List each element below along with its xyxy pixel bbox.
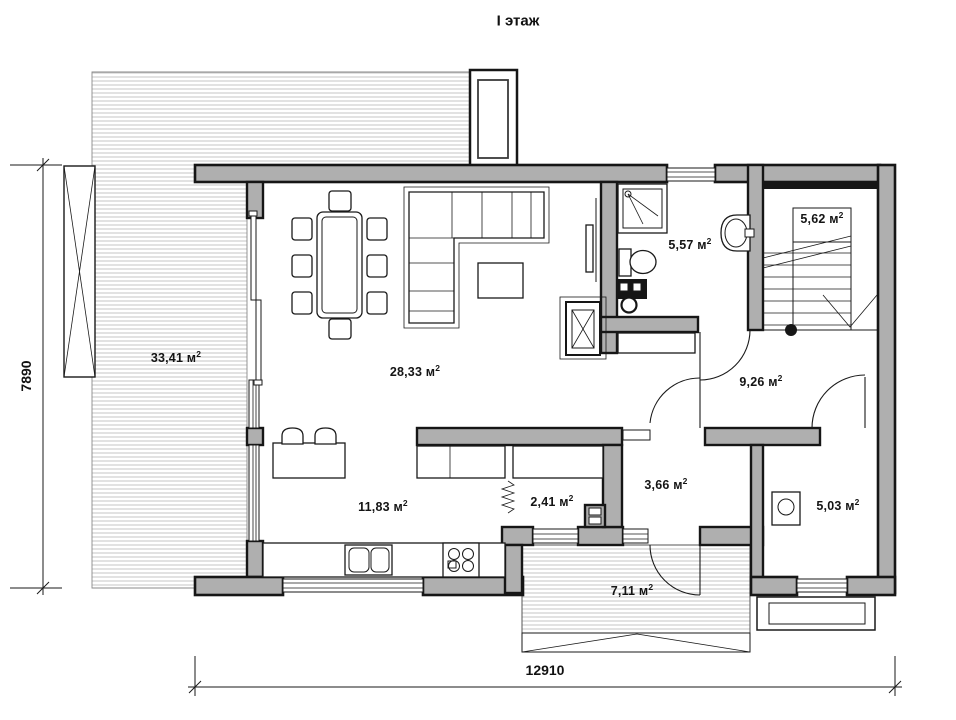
threshold [623, 430, 650, 440]
window-kitchen-south [283, 579, 423, 592]
window-boiler-south [797, 579, 847, 592]
dining-set [292, 191, 387, 339]
corner-sofa [404, 187, 549, 328]
sliding-door-terrace [249, 211, 262, 385]
room-label-bathroom: 5,57 м2 [668, 236, 711, 252]
bar-counter [273, 428, 345, 478]
stairs [763, 208, 877, 336]
window-entry-side [623, 529, 648, 543]
wall-south-kitchen-1 [195, 577, 283, 595]
stove [443, 543, 479, 577]
room-area-value: 3,66 [644, 478, 669, 492]
bar-stool [315, 428, 336, 444]
room-area-value: 5,57 [668, 238, 693, 252]
room-label-living: 28,33 м2 [390, 363, 440, 379]
window-closet-south [533, 529, 578, 543]
room-area-value: 7,11 [611, 584, 635, 598]
wall-stair-inner-border [763, 182, 878, 189]
window-north [667, 168, 715, 181]
hall-console [618, 333, 695, 353]
door-accordion-closet [502, 481, 514, 513]
room-label-porch: 7,11 м2 [611, 582, 654, 598]
room-area-value: 11,83 [358, 500, 390, 514]
shelf-niche [585, 505, 605, 527]
dimension-width-label: 12910 [526, 662, 565, 678]
wall-south-east-1 [751, 577, 797, 595]
room-label-closet: 2,41 м2 [530, 493, 573, 509]
furniture [263, 184, 800, 577]
wall-north-west [195, 165, 667, 182]
room-label-boiler-room: 5,03 м2 [816, 497, 859, 513]
door-entry-hall [650, 378, 700, 423]
wall-bath-south [601, 317, 698, 332]
window-west-1 [249, 380, 259, 428]
coffee-table [478, 263, 523, 298]
dimension-height-label: 7890 [18, 360, 34, 391]
washbasin [721, 215, 754, 251]
wall-boiler-west [751, 445, 763, 593]
stair-newel-post [785, 324, 797, 336]
room-label-hall: 9,26 м2 [739, 373, 782, 389]
plumbing-riser [617, 279, 647, 313]
wall-closet-north [417, 428, 622, 445]
awning [64, 166, 95, 377]
boiler [772, 492, 800, 525]
room-area-value: 5,03 [816, 499, 841, 513]
kitchen-counter [263, 543, 505, 577]
dining-table [317, 212, 362, 318]
room-label-kitchen: 11,83 м2 [358, 498, 408, 514]
wall-entry-south-1 [578, 527, 623, 545]
room-label-entry: 3,66 м2 [644, 476, 687, 492]
wall-hall-south [705, 428, 820, 445]
fireplace [560, 297, 606, 359]
tv-panel [586, 198, 596, 282]
toilet [619, 249, 656, 276]
wall-east [878, 165, 895, 593]
terrace-deck [92, 72, 470, 588]
wall-south-east-2 [847, 577, 895, 595]
room-area-value: 9,26 [739, 375, 764, 389]
floor-plan: I этаж 33,41 м2 28,33 м2 5,57 м2 5,62 м2… [0, 0, 956, 720]
side-step [757, 597, 875, 630]
room-label-terrace: 33,41 м2 [151, 349, 201, 365]
room-area-value: 33,41 [151, 351, 183, 365]
wall-pier-west-1 [247, 428, 263, 445]
porch-steps [522, 633, 750, 652]
kitchen-sink [345, 545, 392, 575]
wall-porch-left-b [505, 545, 522, 593]
room-area-value: 28,33 [390, 365, 422, 379]
room-area-value: 2,41 [530, 495, 555, 509]
chimney [470, 70, 517, 167]
wardrobe-closet [417, 446, 603, 478]
floor-plan-canvas [0, 0, 956, 720]
wall-pier-west-2 [247, 541, 263, 577]
room-area-value: 5,62 [800, 212, 825, 226]
room-label-staircase: 5,62 м2 [800, 210, 843, 226]
door-boiler [812, 375, 865, 428]
wall-north-east [715, 165, 880, 182]
bar-stool [282, 428, 303, 444]
wall-porch-left-a [502, 527, 533, 545]
window-west-2 [249, 445, 259, 541]
page-title: I этаж [497, 13, 540, 30]
shower [618, 184, 667, 233]
